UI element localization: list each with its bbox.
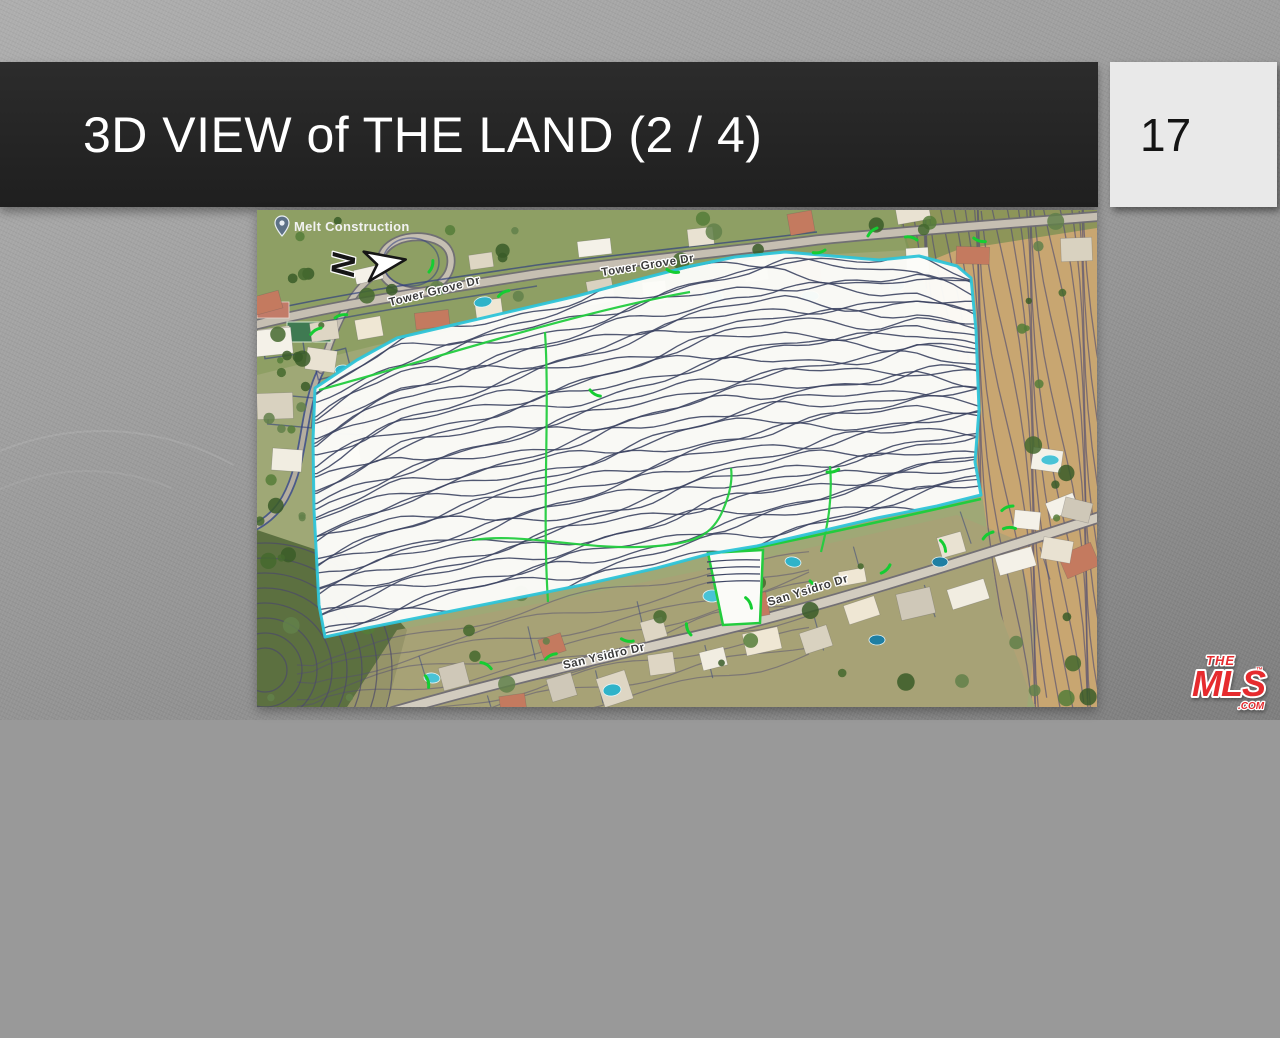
place-label: Melt Construction [294,219,410,234]
page-number-box: 17 [1110,62,1277,207]
mls-logo-tm: ™ [1256,667,1263,674]
mls-logo-mls: MLS [1192,663,1266,704]
mls-logo: THE MLS ™ .COM [1190,648,1270,716]
map-image: Melt Construction N Tower Grove Dr Tower… [257,210,1097,707]
slide-canvas: 3D VIEW of THE LAND (2 / 4) 17 [0,0,1280,720]
mls-logo-com: .COM [1238,701,1265,712]
page-number: 17 [1140,108,1191,162]
aerial-parcel-map: Melt Construction N Tower Grove Dr Tower… [257,210,1097,707]
svg-text:N: N [324,251,363,279]
title-bar: 3D VIEW of THE LAND (2 / 4) [0,62,1098,207]
slide-title: 3D VIEW of THE LAND (2 / 4) [83,106,762,164]
